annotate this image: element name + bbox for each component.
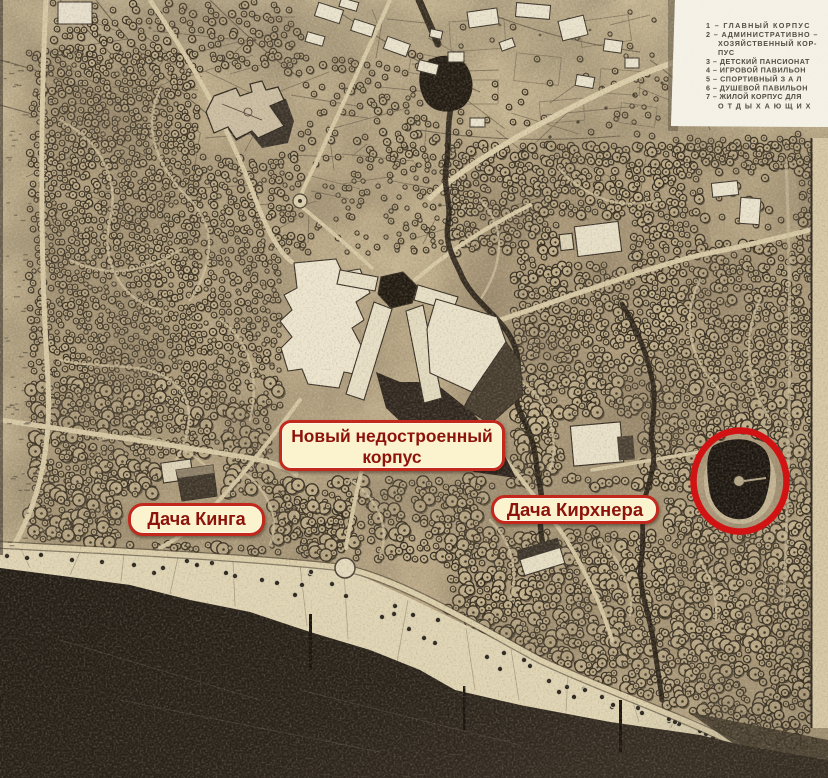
svg-text:ПУС: ПУС [718, 48, 735, 57]
svg-text:ОТДЫХАЮЩИХ: ОТДЫХАЮЩИХ [718, 102, 811, 111]
svg-text:7 – ЖИЛОЙ КОРПУС ДЛЯ: 7 – ЖИЛОЙ КОРПУС ДЛЯ [706, 92, 802, 101]
svg-text:1 – ГЛАВНЫЙ КОРПУС: 1 – ГЛАВНЫЙ КОРПУС [706, 21, 810, 30]
svg-text:5 – СПОРТИВНЫЙ З А Л: 5 – СПОРТИВНЫЙ З А Л [706, 75, 802, 84]
svg-text:ХОЗЯЙСТВЕННЫЙ КОР-: ХОЗЯЙСТВЕННЫЙ КОР- [718, 39, 817, 48]
svg-text:4 – ИГРОВОЙ ПАВИЛЬОН: 4 – ИГРОВОЙ ПАВИЛЬОН [706, 66, 806, 75]
svg-text:2 – АДМИНИСТРАТИВНО –: 2 – АДМИНИСТРАТИВНО – [706, 30, 818, 39]
